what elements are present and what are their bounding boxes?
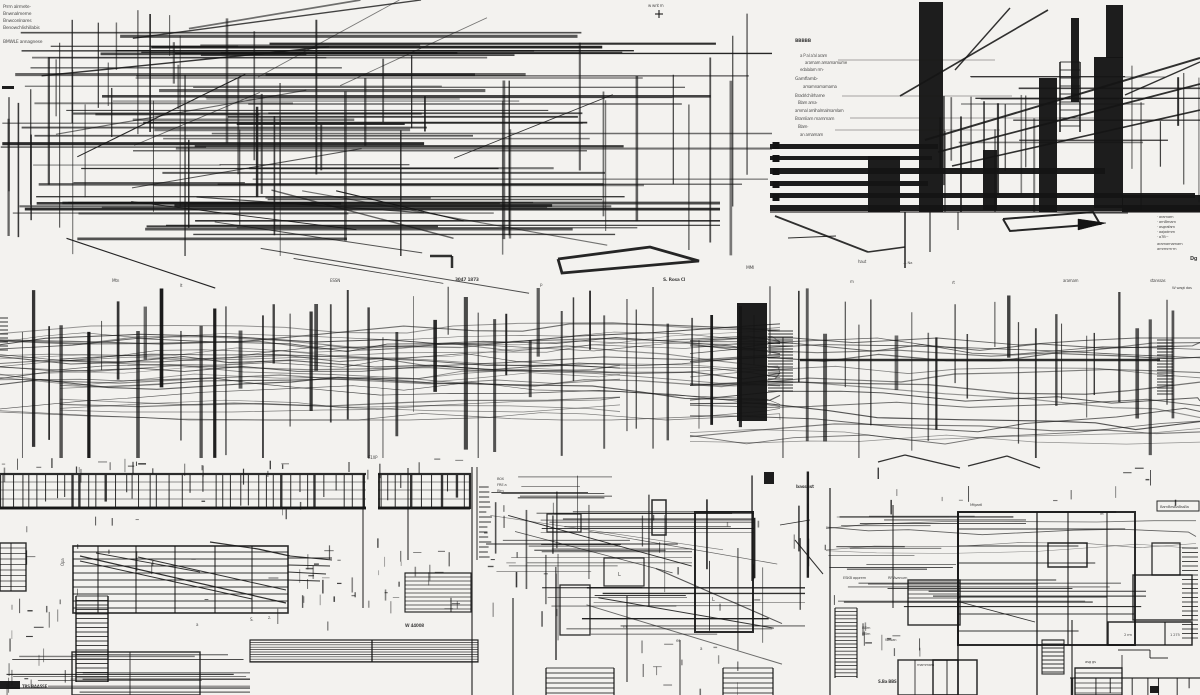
annotation-text: 3047 1873 bbox=[455, 277, 479, 283]
annotation-text: Blam· bbox=[798, 124, 808, 129]
annotation-text: MMl bbox=[746, 265, 754, 271]
annotation-text: 1 275 bbox=[1170, 632, 1180, 637]
annotation-text: FRE a bbox=[497, 482, 507, 487]
black-fill bbox=[770, 156, 932, 160]
annotation-text: asg gs bbox=[1085, 659, 1096, 664]
black-fill bbox=[770, 205, 1200, 211]
annotation-text: Bramliam mammam bbox=[795, 116, 834, 121]
annotation-text: Blam ama· bbox=[798, 100, 817, 105]
diagram-collage: Prrm alrmete·BnwnalmemeBnwconlnaresBenow… bbox=[0, 0, 1200, 695]
annotation-text: BMWLE annagnese bbox=[3, 39, 43, 45]
annotation-text: Bnwconlnares bbox=[3, 18, 32, 24]
annotation-text: p bbox=[540, 282, 543, 287]
black-fill bbox=[770, 193, 1195, 198]
black-fill bbox=[770, 181, 928, 186]
diagram-collage-svg: Prrm alrmete·BnwnalmemeBnwconlnaresBenow… bbox=[0, 0, 1200, 695]
annotation-text: Gamflamb· bbox=[795, 76, 818, 82]
black-fill bbox=[770, 168, 1105, 174]
annotation-text: z. bbox=[268, 615, 271, 620]
annotation-text: a bbox=[196, 622, 199, 627]
annotation-text: Wasan bbox=[885, 637, 897, 642]
annotation-text: Dg bbox=[1190, 256, 1198, 262]
black-fill bbox=[1150, 686, 1159, 693]
panel-middle-stringline-band: MtnltESSN3047 1873pS. Rosa ClMMlmrtarama… bbox=[0, 247, 1200, 627]
annotation-text: Benowchlishillabis bbox=[3, 25, 41, 31]
annotation-text: L bbox=[618, 572, 621, 578]
black-fill bbox=[0, 681, 20, 689]
black-fill bbox=[764, 472, 774, 484]
annotation-text: RF Avanum bbox=[888, 575, 908, 580]
annotation-text: — Na bbox=[903, 260, 912, 265]
black-fill bbox=[2, 86, 14, 89]
annotation-text: aramam amamamume bbox=[805, 60, 848, 65]
annotation-text: BBBBB bbox=[795, 38, 812, 44]
annotation-text: haut bbox=[858, 259, 867, 264]
annotation-text: Mtn bbox=[112, 278, 120, 283]
annotation-text: Mfgaell bbox=[970, 502, 982, 507]
annotation-text: rt bbox=[952, 280, 955, 285]
annotation-text: bassust bbox=[796, 484, 815, 490]
annotation-text: m bbox=[623, 624, 627, 629]
annotation-text: E1XP bbox=[368, 455, 378, 460]
annotation-text: amamnamamama bbox=[803, 84, 838, 89]
annotation-text: stanssas bbox=[1150, 278, 1166, 283]
annotation-text: W 44008 bbox=[405, 623, 424, 628]
annotation-text: TRS BAASSE bbox=[22, 684, 48, 689]
annotation-text: B0X bbox=[497, 476, 505, 481]
annotation-text: BamBesBaBssBa bbox=[1160, 504, 1189, 509]
black-fill bbox=[1071, 18, 1079, 102]
panel-top-right-bar-skyline: BBBBBa P al a'al aramaramam amamamumeeda… bbox=[770, 2, 1200, 268]
annotation-text: ESKB apprem bbox=[843, 575, 867, 580]
panel-bottom-middle-schematic: B0XFRE aBlmbassustLaesLm bbox=[472, 467, 823, 695]
annotation-text: mammam bbox=[917, 663, 935, 667]
annotation-text: a bbox=[700, 646, 703, 651]
annotation-text: · a7B··· bbox=[1157, 234, 1168, 239]
annotation-text: w wnt m bbox=[648, 3, 664, 8]
black-fill bbox=[770, 144, 938, 149]
annotation-text: W wagt das bbox=[1172, 285, 1192, 290]
black-fill bbox=[1106, 5, 1123, 58]
annotation-text: lt bbox=[180, 283, 183, 288]
annotation-text: ammal amlhalmalmamlam bbox=[795, 108, 844, 113]
panel-bottom-right-plan-grid: 2 rm1 275mammamESKB appremRF AvanumBBmBB… bbox=[826, 455, 1200, 695]
annotation-text: m bbox=[850, 279, 854, 284]
black-fill bbox=[919, 2, 943, 212]
annotation-text: S. Rosa Cl bbox=[663, 277, 686, 283]
annotation-text: S.Ba BBS bbox=[878, 679, 897, 684]
panel-ruler-strip bbox=[0, 458, 470, 510]
annotation-text: Opa bbox=[60, 558, 65, 566]
black-fill bbox=[737, 303, 767, 421]
annotation-text: amrmrm·m bbox=[1157, 246, 1177, 251]
annotation-text: es bbox=[676, 638, 680, 643]
annotation-text: a P al a'al aram bbox=[800, 53, 827, 58]
annotation-text: an amamam bbox=[800, 132, 823, 137]
annotation-text: aramam bbox=[1063, 278, 1079, 283]
annotation-text: S. bbox=[250, 617, 253, 622]
annotation-text: 2 rm bbox=[1124, 632, 1132, 637]
annotation-text: Prrm alrmete· bbox=[3, 4, 31, 10]
annotation-text: edalalam rm· bbox=[800, 67, 824, 72]
annotation-text: ESSN bbox=[330, 278, 340, 283]
annotation-text: Bradrlchilrhame bbox=[795, 93, 825, 98]
annotation-text: Bnwnalmeme bbox=[3, 11, 32, 17]
